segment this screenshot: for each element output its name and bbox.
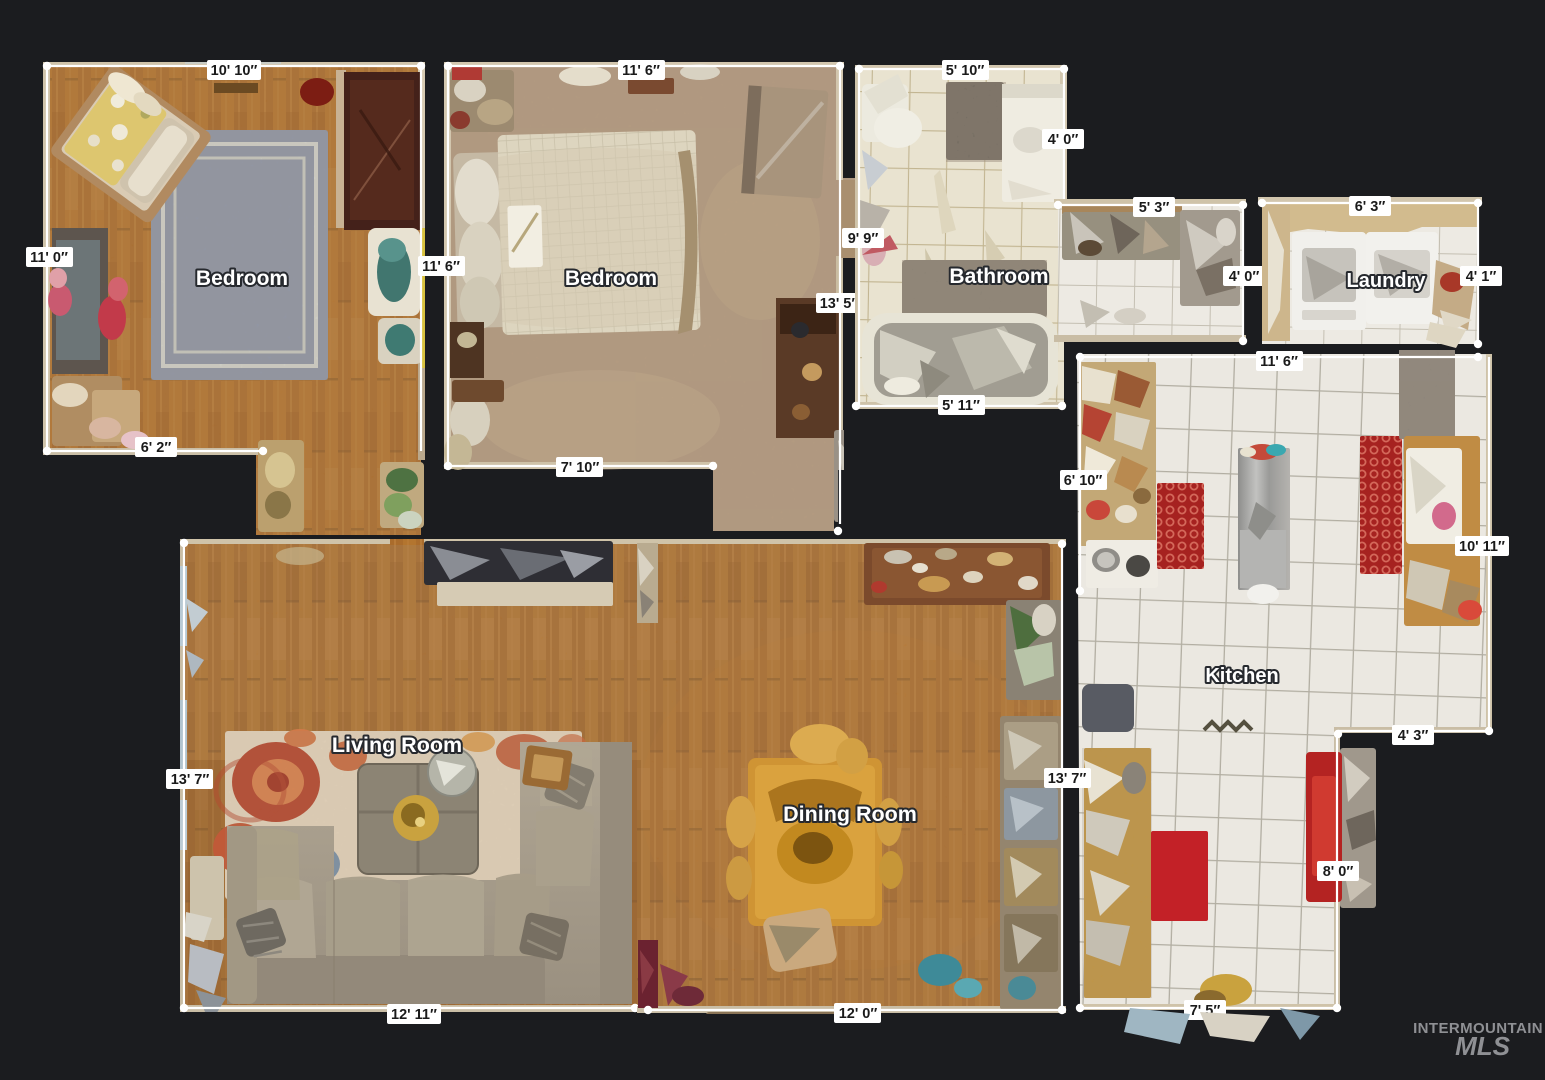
svg-text:Living Room: Living Room (332, 733, 462, 757)
svg-text:6' 10″: 6' 10″ (1064, 473, 1103, 489)
svg-text:Bedroom: Bedroom (565, 267, 657, 290)
svg-text:MLS: MLS (1455, 1031, 1511, 1061)
svg-text:9' 9″: 9' 9″ (848, 231, 879, 247)
svg-text:Kitchen: Kitchen (1205, 665, 1278, 687)
svg-text:11' 6″: 11' 6″ (422, 259, 460, 275)
svg-text:12' 11″: 12' 11″ (391, 1007, 437, 1023)
svg-text:11' 0″: 11' 0″ (30, 250, 68, 266)
svg-text:13' 5″: 13' 5″ (820, 296, 859, 312)
svg-text:8' 0″: 8' 0″ (1323, 864, 1354, 880)
svg-text:13' 7″: 13' 7″ (1048, 771, 1087, 787)
svg-text:10' 10″: 10' 10″ (211, 63, 258, 79)
svg-text:5' 10″: 5' 10″ (946, 63, 985, 79)
svg-text:12' 0″: 12' 0″ (839, 1006, 878, 1022)
svg-text:10' 11″: 10' 11″ (1459, 539, 1505, 555)
svg-text:Bathroom: Bathroom (949, 265, 1048, 288)
svg-text:6' 3″: 6' 3″ (1355, 199, 1386, 215)
svg-text:5' 3″: 5' 3″ (1139, 200, 1170, 216)
svg-text:5' 11″: 5' 11″ (942, 398, 980, 414)
svg-text:11' 6″: 11' 6″ (1260, 354, 1298, 370)
svg-text:4' 3″: 4' 3″ (1398, 728, 1429, 744)
svg-text:Laundry: Laundry (1347, 270, 1427, 292)
svg-text:Bedroom: Bedroom (196, 267, 288, 290)
svg-text:4' 1″: 4' 1″ (1466, 269, 1497, 285)
svg-text:6' 2″: 6' 2″ (141, 440, 172, 456)
svg-text:13' 7″: 13' 7″ (171, 772, 210, 788)
svg-text:11' 6″: 11' 6″ (622, 63, 660, 79)
svg-text:4' 0″: 4' 0″ (1048, 132, 1079, 148)
svg-text:4' 0″: 4' 0″ (1229, 269, 1260, 285)
svg-text:Dining Room: Dining Room (783, 802, 917, 826)
svg-text:7' 10″: 7' 10″ (561, 460, 600, 476)
